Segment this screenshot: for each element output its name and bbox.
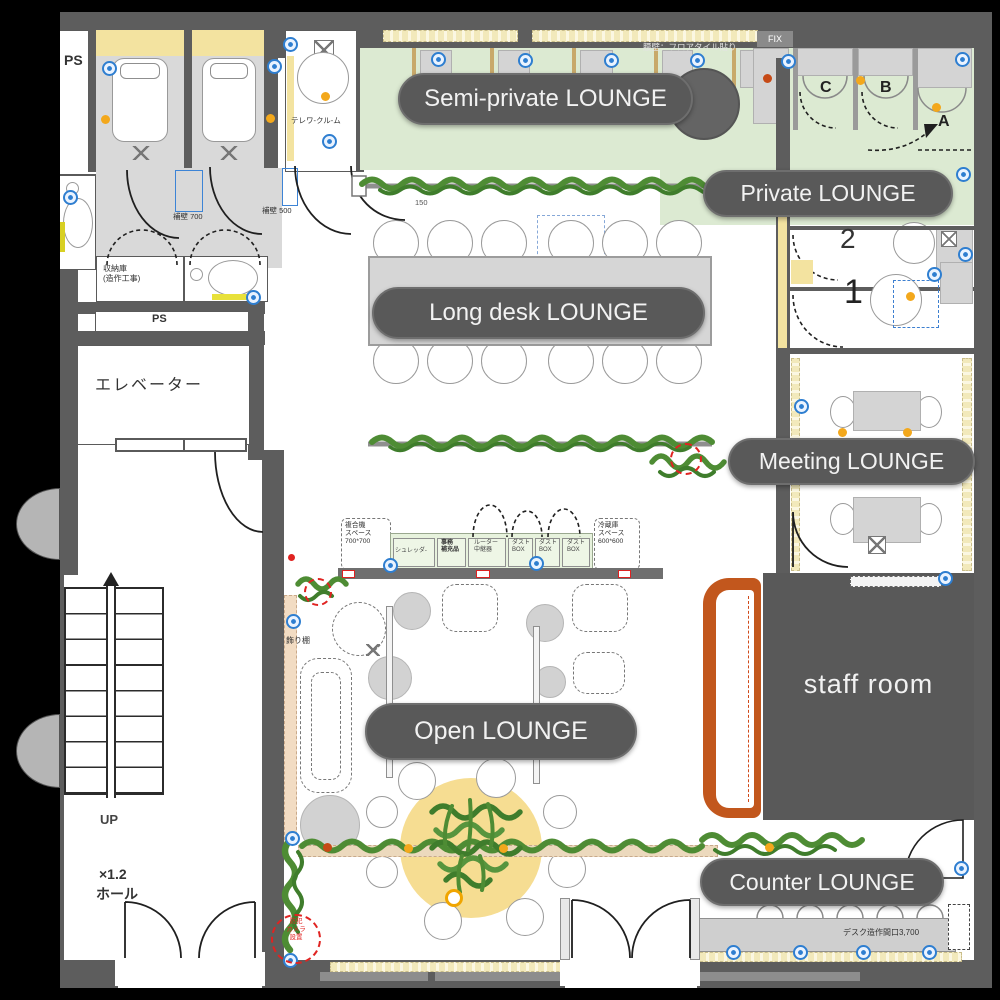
long-desk-pill: Long desk LOUNGE <box>372 287 705 339</box>
wall-r2-top <box>790 226 974 230</box>
sensor-icon <box>793 945 808 960</box>
sensor-icon <box>246 290 261 305</box>
sensor-icon <box>922 945 937 960</box>
staff-hatch <box>850 576 942 587</box>
meeting-table-2 <box>853 497 921 543</box>
downlight-icon <box>906 292 915 301</box>
meeting-table-1 <box>853 391 921 431</box>
mid-door-post-l <box>560 898 570 960</box>
room2-equip-icon <box>941 231 957 247</box>
open-bench-inner <box>311 672 341 780</box>
sensor-icon <box>322 134 337 149</box>
sensor-icon <box>267 59 282 74</box>
hall-door-opening <box>115 952 265 986</box>
sensor-icon <box>958 247 973 262</box>
staff-room-label: staff room <box>763 668 974 700</box>
rug-ring <box>445 889 463 907</box>
room1-closet <box>791 260 813 284</box>
sensor-icon <box>529 556 544 571</box>
counter-pill-text: Counter LOUNGE <box>729 869 914 896</box>
bed-2-pillow <box>210 63 248 79</box>
wall-right <box>974 12 992 988</box>
elevator-door-1 <box>115 438 185 452</box>
sensor-icon <box>726 945 741 960</box>
sensor-icon <box>954 861 969 876</box>
downlight-icon <box>101 115 110 124</box>
storage-label: 収納庫 (造作工事) <box>103 264 140 283</box>
display-shelf-label: 飾り棚 <box>286 636 310 646</box>
doorframe-500 <box>282 168 298 206</box>
sensor-icon <box>63 190 78 205</box>
wall500-label: 補壁 500 <box>262 206 292 215</box>
downlight-icon <box>932 103 941 112</box>
downlight-icon <box>499 844 508 853</box>
wall-ps-b <box>60 331 265 345</box>
sensor-icon <box>285 831 300 846</box>
camera-stamp-label: 防犯 カメラ 設置 <box>279 918 313 942</box>
ps-mid-label: PS <box>152 313 167 326</box>
open-chair-3 <box>543 795 577 829</box>
mid-door-opening <box>560 898 700 986</box>
sensor-icon <box>794 399 809 414</box>
room2-label: 2 <box>840 222 856 256</box>
bedroom-2-closet <box>192 30 264 56</box>
dust-1-label: ダスト BOX <box>512 540 530 554</box>
meeting-equip-icon <box>868 536 886 554</box>
floor-plan: 腰壁：フロアタイル貼り FIX PS テレワ-クル-ム 補壁 700 補壁 50… <box>0 0 1000 1000</box>
open-left-strip <box>284 595 297 845</box>
booth-b-desk <box>858 48 913 76</box>
open-pill-text: Open LOUNGE <box>414 717 588 746</box>
shelf-clip-1 <box>342 570 355 578</box>
meeting-pill: Meeting LOUNGE <box>728 438 975 485</box>
downlight-icon <box>321 92 330 101</box>
stair-up-arrow-icon <box>103 572 119 586</box>
sensor-icon <box>283 37 298 52</box>
open-sofa-1 <box>442 584 498 632</box>
elevator-door-2 <box>183 438 247 452</box>
booth-c-label: C <box>820 78 832 97</box>
sensor-icon <box>102 61 117 76</box>
open-tan-band <box>298 845 718 857</box>
ps-top-label: PS <box>64 52 83 69</box>
mid-door-post-r <box>690 898 700 960</box>
sensor-icon <box>938 571 953 586</box>
waist-wall-note: 腰壁：フロアタイル貼り <box>643 42 753 52</box>
sensor-icon <box>383 558 398 573</box>
downlight-icon <box>404 844 413 853</box>
booth-wall-b <box>913 48 918 130</box>
open-sofa-2 <box>572 584 628 632</box>
sensor-icon <box>518 53 533 68</box>
open-chair-1 <box>398 762 436 800</box>
open-pill: Open LOUNGE <box>365 703 637 760</box>
private-pill-text: Private LOUNGE <box>740 180 915 207</box>
sensor-icon <box>431 52 446 67</box>
counter-pill: Counter LOUNGE <box>700 858 944 906</box>
open-chair-7 <box>366 796 398 828</box>
semi-private-pill: Semi-private LOUNGE <box>398 73 693 125</box>
open-chair-6 <box>424 902 462 940</box>
basin-right-small <box>190 268 203 281</box>
basin-left-strip <box>60 222 65 252</box>
shelf-clip-3 <box>618 570 631 578</box>
bed-1-pillow <box>120 63 160 79</box>
sensor-icon <box>955 52 970 67</box>
hall-scale-label: ×1.2 <box>99 866 127 883</box>
emergency-light-icon <box>323 843 332 852</box>
bedroom-1-closet <box>96 30 184 56</box>
shelf-clip-2 <box>476 570 490 578</box>
bottom-tab-3 <box>700 972 860 981</box>
stool-2-icon <box>220 146 238 160</box>
downlight-icon <box>856 76 865 85</box>
counter-hatch-1 <box>383 30 518 42</box>
semi-private-pill-text: Semi-private LOUNGE <box>424 85 667 113</box>
open-chair-2 <box>476 758 516 798</box>
open-dashed-table-x <box>366 644 380 656</box>
downlight-icon <box>903 428 912 437</box>
mfp-label: 複合機 スペース 700*700 <box>345 522 371 546</box>
wall-open-left <box>262 450 284 962</box>
pot-ring-2 <box>670 443 702 475</box>
basin-left <box>63 198 93 248</box>
dim-150-label: 150 <box>415 198 428 207</box>
booth-c-desk <box>797 48 853 76</box>
outer-door-leaf-1 <box>16 488 60 560</box>
wall-bed-a <box>88 30 96 172</box>
bottom-tab-1 <box>320 972 428 981</box>
hall-label: ホール <box>96 886 138 903</box>
sensor-icon <box>781 54 796 69</box>
supplies-label: 事務 補充品 <box>441 540 459 554</box>
telework-closet-strip <box>287 56 294 161</box>
open-sofa-3 <box>573 652 625 694</box>
up-label: UP <box>100 812 118 828</box>
open-table-2 <box>393 592 431 630</box>
dust-3-label: ダスト BOX <box>567 540 585 554</box>
right-wing-strip <box>778 212 787 348</box>
fix-window-label: FIX <box>757 31 793 47</box>
emergency-light-icon <box>288 554 295 561</box>
booth-wall-cb <box>853 48 858 130</box>
open-chair-5 <box>506 898 544 936</box>
wall-bed-b <box>184 30 192 172</box>
elevator-label: エレベーター <box>95 376 203 395</box>
sensor-icon <box>927 267 942 282</box>
ps-mid-box <box>95 311 250 333</box>
counter-ac-zone <box>948 904 970 950</box>
downlight-icon <box>266 114 275 123</box>
router-label: ルーター 中継器 <box>474 540 498 554</box>
sensor-icon <box>286 614 301 629</box>
wall-col-center <box>248 302 264 460</box>
sensor-icon <box>690 53 705 68</box>
room1-equip-zone <box>893 280 939 328</box>
sensor-icon <box>604 53 619 68</box>
downlight-icon <box>838 428 847 437</box>
pot-ring-1 <box>304 578 332 606</box>
counter-hatch-2 <box>532 30 758 42</box>
booth-a-label: A <box>938 112 950 131</box>
counter-desk-dim: デスク造作間口3,700 <box>843 928 919 938</box>
wall-bottom-1 <box>60 960 118 988</box>
doorframe-700 <box>175 170 203 212</box>
meeting-pill-text: Meeting LOUNGE <box>759 448 944 475</box>
telework-label: テレワ-クル-ム <box>291 116 341 125</box>
fridge-label: 冷蔵庫 スペース 600*600 <box>598 522 624 546</box>
outer-door-leaf-2 <box>16 714 60 788</box>
wall-bed-c <box>264 30 278 172</box>
emergency-light-icon <box>763 74 772 83</box>
open-table-3 <box>526 604 564 642</box>
room1-label: 1 <box>844 272 863 313</box>
stair-center-rail <box>106 582 116 798</box>
long-desk-pill-text: Long desk LOUNGE <box>429 299 648 327</box>
booth-b-label: B <box>880 78 892 97</box>
shredder-label: シュレッダ- <box>395 548 427 555</box>
sensor-icon <box>856 945 871 960</box>
private-pill: Private LOUNGE <box>703 170 953 217</box>
open-chair-8 <box>366 856 398 888</box>
stool-1-icon <box>132 146 150 160</box>
sensor-icon <box>956 167 971 182</box>
dust-2-label: ダスト BOX <box>539 540 557 554</box>
downlight-icon <box>765 843 774 852</box>
room1-cabinet <box>940 262 973 304</box>
orange-counter-line <box>748 596 749 802</box>
wall700-label: 補壁 700 <box>173 212 203 221</box>
